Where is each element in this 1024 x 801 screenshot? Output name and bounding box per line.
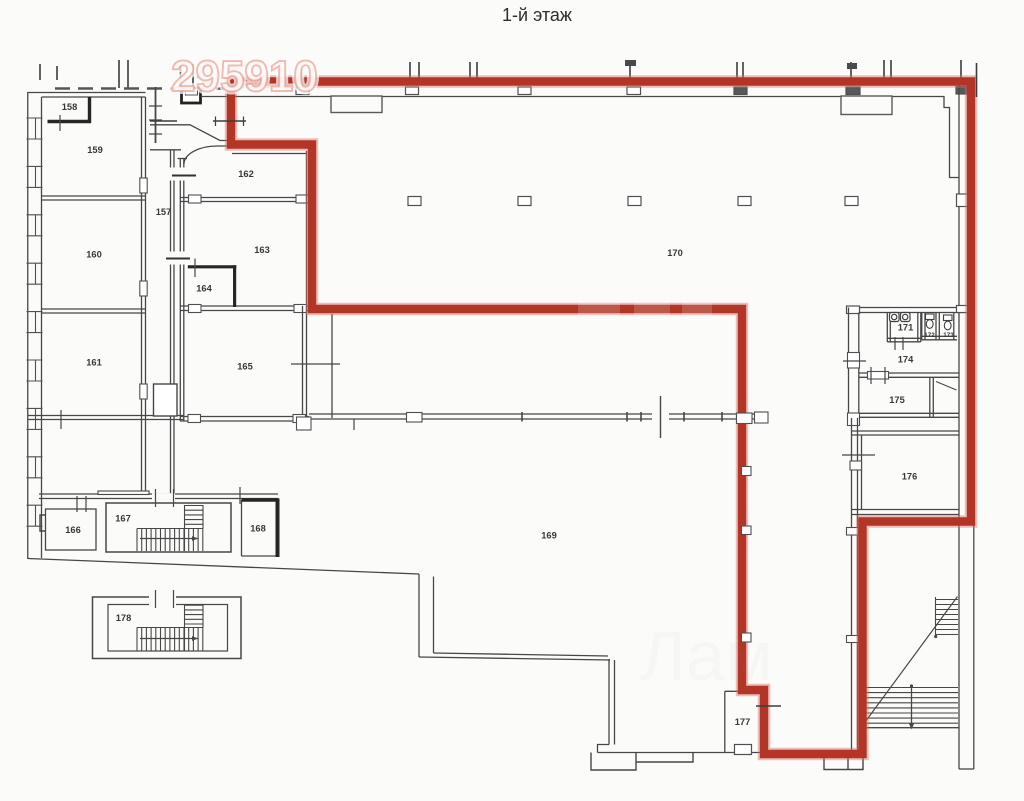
svg-text:165: 165	[237, 362, 253, 372]
svg-text:Лам: Лам	[640, 617, 773, 695]
svg-text:164: 164	[196, 284, 212, 294]
svg-text:171: 171	[898, 323, 914, 333]
svg-text:159: 159	[87, 145, 103, 155]
svg-text:166: 166	[65, 525, 81, 535]
svg-text:177: 177	[735, 717, 751, 727]
svg-text:178: 178	[116, 613, 132, 623]
svg-text:1-й этаж: 1-й этаж	[502, 5, 572, 25]
svg-text:167: 167	[115, 514, 131, 524]
svg-text:163: 163	[254, 245, 270, 255]
svg-text:161: 161	[86, 358, 102, 368]
svg-text:169: 169	[541, 531, 557, 541]
svg-text:172: 172	[924, 332, 935, 339]
svg-text:160: 160	[86, 250, 102, 260]
svg-text:295910: 295910	[171, 52, 318, 101]
svg-text:173: 173	[943, 332, 954, 339]
svg-text:170: 170	[667, 248, 683, 258]
svg-text:158: 158	[62, 102, 78, 112]
svg-text:175: 175	[889, 395, 905, 405]
svg-text:162: 162	[238, 169, 254, 179]
svg-text:168: 168	[250, 524, 266, 534]
svg-text:176: 176	[902, 472, 918, 482]
svg-text:157: 157	[156, 207, 172, 217]
svg-text:174: 174	[898, 355, 914, 365]
